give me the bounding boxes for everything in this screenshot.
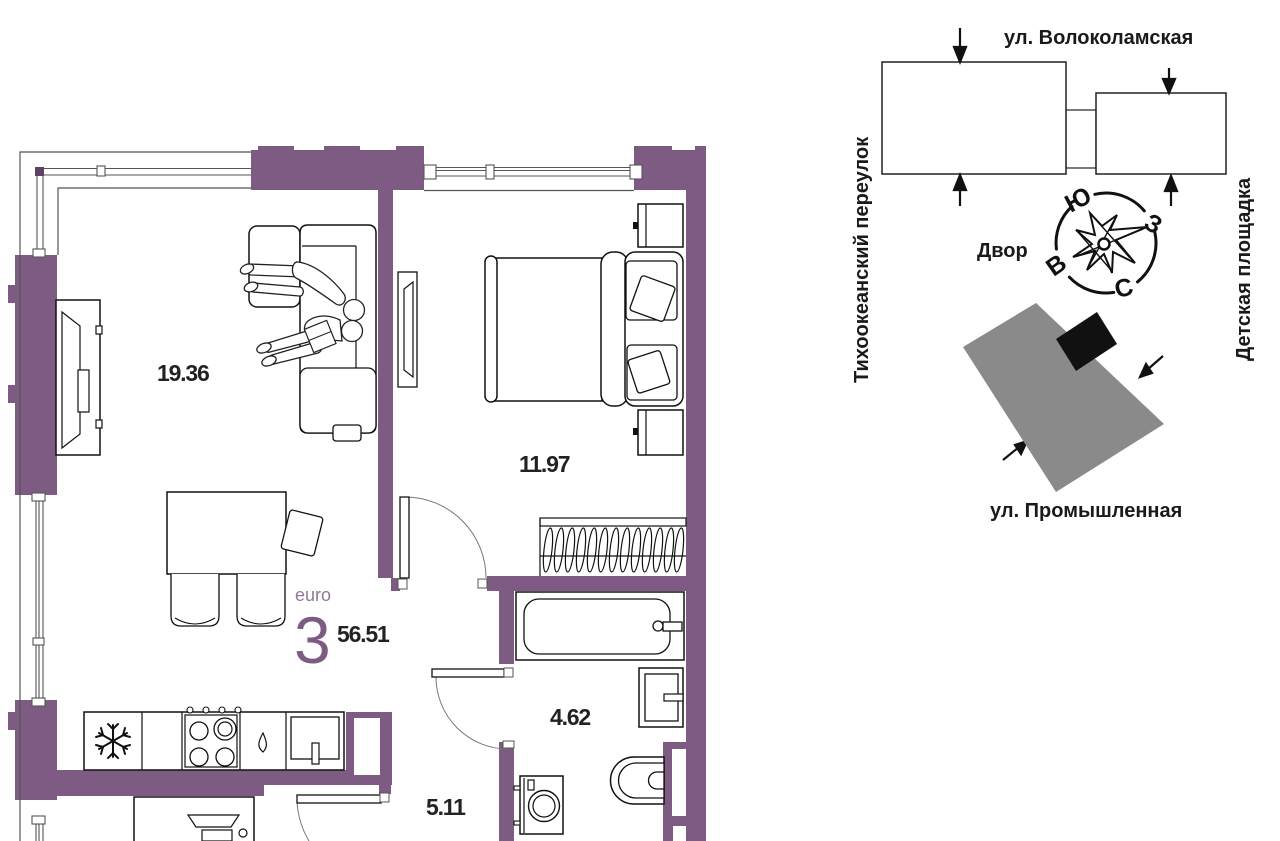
svg-text:В: В	[1041, 249, 1072, 282]
svg-text:11.97: 11.97	[519, 451, 570, 477]
svg-text:ул. Промышленная: ул. Промышленная	[990, 500, 1182, 522]
svg-text:euro: euro	[295, 585, 331, 605]
svg-text:Тихоокеанский переулок: Тихоокеанский переулок	[851, 136, 873, 383]
svg-text:4.62: 4.62	[550, 704, 590, 730]
svg-text:19.36: 19.36	[157, 360, 209, 386]
svg-text:5.11: 5.11	[426, 794, 466, 820]
svg-text:3: 3	[294, 603, 331, 677]
svg-text:56.51: 56.51	[337, 621, 390, 647]
svg-text:З: З	[1139, 208, 1167, 240]
svg-text:С: С	[1112, 272, 1137, 304]
svg-text:Двор: Двор	[977, 240, 1028, 262]
svg-text:ул. Волоколамская: ул. Волоколамская	[1004, 27, 1193, 49]
svg-text:Детская площадка: Детская площадка	[1233, 177, 1255, 361]
